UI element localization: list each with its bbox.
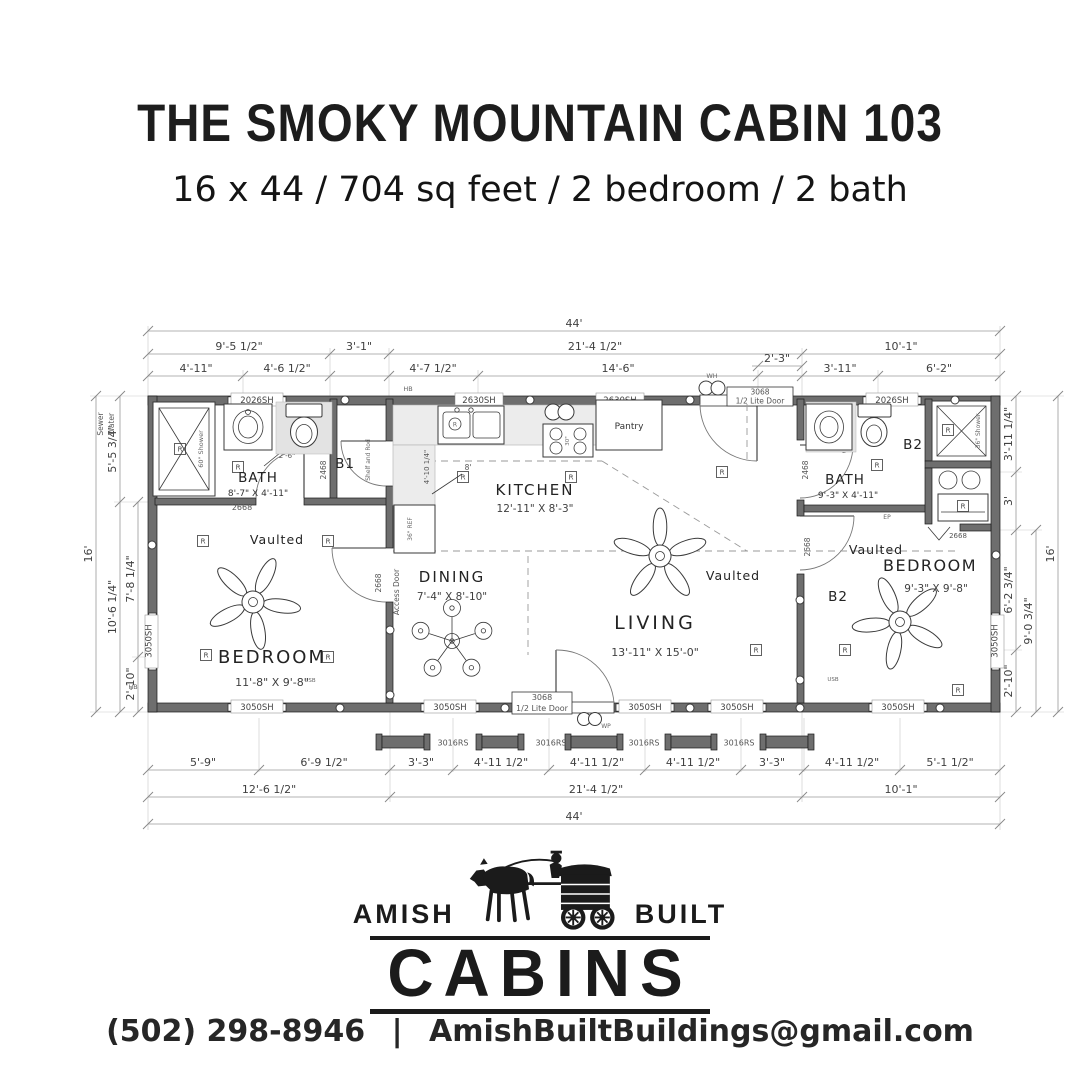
bath1-name: BATH — [238, 470, 278, 486]
contact-line: (502) 298-8946 | AmishBuiltBuildings@gma… — [0, 1014, 1080, 1049]
dimensions-left: 16' 5'-5 3/4" 10'-6 1/4" 7'-8 1/4" 2'-10… — [82, 411, 138, 700]
front-door-type: 1/2 Lite Door — [516, 704, 569, 713]
dim-top-r3-5: 6'-2" — [926, 362, 952, 375]
door-2668-a: 2668 — [232, 503, 252, 512]
logo-word-cabins: CABINS — [387, 938, 692, 1009]
door-2668-nook: 2668 — [949, 532, 967, 540]
water-heater-label: WH — [706, 372, 717, 380]
dining-name: DINING — [419, 568, 485, 586]
ceiling-8ft-label: 8' — [465, 463, 472, 472]
light-r: R — [754, 647, 759, 655]
ceiling-fan-bedroom1 — [204, 549, 307, 656]
window-3050sh-b5: 3050SH — [881, 703, 914, 713]
dim-right-0: 3'-11 1/4" — [1002, 407, 1015, 461]
window-3050sh-b4: 3050SH — [720, 703, 753, 713]
bedroom2-name: BEDROOM — [883, 556, 977, 575]
bath1-size: 8'-7" X 4'-11" — [228, 489, 288, 499]
bath2-name: BATH — [825, 472, 865, 488]
dim-bot2-2: 10'-1" — [884, 783, 917, 796]
dim-left-1: 10'-6 1/4" — [106, 580, 119, 634]
window-3050sh-b2: 3050SH — [433, 703, 466, 713]
horse-and-wagon-icon — [465, 846, 625, 940]
kitchen-name: KITCHEN — [496, 481, 575, 499]
door-2668-bedroom2: 2668 — [803, 537, 812, 556]
dim-top-r3-3: 14'-6" — [601, 362, 634, 375]
window-3050sh-b3: 3050SH — [628, 703, 661, 713]
living-size: 13'-11" X 15'-0" — [611, 646, 699, 659]
dimensions-right: 3'-11 1/4" 3' 6'-2 3/4" 2'-10" 9'-0 3/4"… — [1002, 407, 1057, 698]
dining-chandelier — [412, 600, 492, 677]
dining-size: 7'-4" X 8'-10" — [417, 591, 487, 603]
dim-right-1: 3' — [1002, 496, 1015, 506]
light-r: R — [843, 647, 848, 655]
dim-right-sub: 9'-0 3/4" — [1022, 597, 1035, 644]
rail-3016rs: 3016RS — [536, 739, 567, 748]
rail-3016rs: 3016RS — [724, 739, 755, 748]
light-r: R — [178, 446, 183, 454]
weatherproof-label: WP — [601, 723, 611, 730]
logo-word-built: BUILT — [635, 899, 727, 930]
dim-bot-1: 6'-9 1/2" — [300, 756, 347, 769]
vaulted-1: Vaulted — [250, 532, 304, 547]
kitchen-size: 12'-11" X 8'-3" — [497, 503, 574, 515]
dim-bot-2: 3'-3" — [408, 756, 434, 769]
light-r: R — [956, 687, 961, 695]
dimensions-bottom: 5'-9" 6'-9 1/2" 3'-3" 4'-11 1/2" 4'-11 1… — [190, 756, 974, 823]
dim-bot-8: 5'-1 1/2" — [926, 756, 973, 769]
electrical-panel-label: EP — [883, 514, 891, 521]
dim-top-r2-1: 3'-1" — [346, 340, 372, 353]
dim-top-r2-3: 10'-1" — [884, 340, 917, 353]
light-r: R — [946, 427, 951, 435]
sewer-label: Sewer — [96, 411, 105, 435]
contact-phone: (502) 298-8946 — [106, 1014, 365, 1049]
flyer-page: THE SMOKY MOUNTAIN CABIN 103 16 x 44 / 7… — [0, 0, 1080, 1080]
dim-right-2: 6'-2 3/4" — [1002, 566, 1015, 613]
dim-bot-6: 3'-3" — [759, 756, 785, 769]
sink-light-r: R — [453, 422, 457, 429]
closet-b2: B2 — [903, 437, 923, 453]
window-2630sh-1: 2630SH — [462, 396, 495, 406]
rear-door-size: 3068 — [750, 388, 769, 397]
dim-right-overall: 16' — [1044, 545, 1057, 562]
bedroom2-size: 9'-3" X 9'-8" — [904, 583, 968, 595]
bath2-size: 9'-3" X 4'-11" — [818, 491, 878, 501]
bedroom1-name: BEDROOM — [218, 647, 326, 668]
light-r: R — [201, 538, 206, 546]
light-r: R — [961, 503, 966, 511]
light-r: R — [326, 654, 331, 662]
dim-bot-0: 5'-9" — [190, 756, 216, 769]
contact-separator: | — [392, 1014, 403, 1049]
dim-bot-overall: 44' — [565, 810, 582, 823]
dim-top-r3-0: 4'-11" — [179, 362, 212, 375]
light-r: R — [326, 538, 331, 546]
kitchen-dim-label: 4'-10 1/4" — [423, 450, 431, 485]
fridge-label: 36" REF — [407, 517, 414, 541]
window-3050sh-b1: 3050SH — [240, 703, 273, 713]
light-r: R — [720, 469, 725, 477]
dim-top-inset: 2'-3" — [764, 352, 790, 365]
living-name: LIVING — [614, 612, 696, 634]
dim-top-r2-0: 9'-5 1/2" — [215, 340, 262, 353]
dim-bot2-0: 12'-6 1/2" — [242, 783, 296, 796]
dim-left-overall: 16' — [82, 545, 95, 562]
closet-b1: B1 — [335, 456, 355, 472]
logo-word-amish: AMISH — [353, 899, 455, 930]
access-door-label: Access Door — [392, 568, 401, 615]
dim-right-3: 2'-10" — [1002, 664, 1015, 697]
light-r: R — [204, 652, 209, 660]
amish-built-cabins-logo: AMISH — [0, 846, 1080, 1014]
light-r: R — [875, 462, 880, 470]
water-label: Water — [107, 412, 116, 435]
dim-bot-4: 4'-11 1/2" — [570, 756, 624, 769]
dim-top-r3-2: 4'-7 1/2" — [409, 362, 456, 375]
front-door-size: 3068 — [532, 693, 552, 702]
window-3050sh-left: 3050SH — [145, 624, 155, 657]
dim-top-r2-2: 21'-4 1/2" — [568, 340, 622, 353]
dimensions-top: 44' 9'-5 1/2" 3'-1" 21'-4 1/2" 10'-1" 4'… — [179, 317, 952, 375]
bedroom1-size: 11'-8" X 9'-8" — [235, 676, 309, 689]
dim-left-2: 7'-8 1/4" — [124, 555, 137, 602]
vaulted-3: Vaulted — [849, 542, 903, 557]
kitchen-fixtures: 36" REF R 30" Pantry 4'-10 1/4" 8' — [393, 400, 662, 553]
pantry-label: Pantry — [615, 422, 644, 432]
hose-bib-label: HB — [128, 683, 137, 691]
window-3050sh-right: 3050SH — [991, 624, 1001, 657]
dim-top-r3-4: 3'-11" — [823, 362, 856, 375]
bedroom2-b2: B2 — [828, 589, 848, 605]
floor-plan: 44' 9'-5 1/2" 3'-1" 21'-4 1/2" 10'-1" 4'… — [0, 290, 1080, 840]
dim-top-overall: 44' — [565, 317, 582, 330]
shower-60-label: 60" Shower — [197, 430, 205, 468]
usb-outlet-label: USB — [827, 677, 839, 683]
door-2668-access: 2668 — [374, 573, 383, 592]
contact-email: AmishBuiltBuildings@gmail.com — [429, 1014, 974, 1049]
dim-bot-5: 4'-11 1/2" — [666, 756, 720, 769]
shower-36-label: 36" Shower — [975, 413, 982, 448]
shelf-rod-label: Shelf and Rod — [365, 439, 372, 481]
hose-bib-top-label: HB — [403, 385, 412, 393]
light-r: R — [461, 474, 466, 482]
page-subtitle: 16 x 44 / 704 sq feet / 2 bedroom / 2 ba… — [0, 170, 1080, 210]
rear-door-type: 1/2 Lite Door — [736, 397, 786, 406]
rail-3016rs: 3016RS — [629, 739, 660, 748]
rail-3016rs: 3016RS — [438, 739, 469, 748]
ceiling-fan-bedroom2 — [839, 559, 965, 687]
range-30-label: 30" — [565, 436, 571, 446]
porch-rails: 3016RS 3016RS 3016RS 3016RS — [376, 734, 814, 750]
vaulted-2: Vaulted — [706, 568, 760, 583]
dim-bot2-1: 21'-4 1/2" — [569, 783, 623, 796]
dim-bot-7: 4'-11 1/2" — [825, 756, 879, 769]
ceiling-fan-living — [605, 496, 721, 615]
page-title: THE SMOKY MOUNTAIN CABIN 103 — [0, 92, 1080, 154]
dim-top-r3-1: 4'-6 1/2" — [263, 362, 310, 375]
door-2468-a: 2468 — [319, 460, 328, 479]
door-2468-c: 2468 — [801, 460, 810, 479]
dim-bot-3: 4'-11 1/2" — [474, 756, 528, 769]
